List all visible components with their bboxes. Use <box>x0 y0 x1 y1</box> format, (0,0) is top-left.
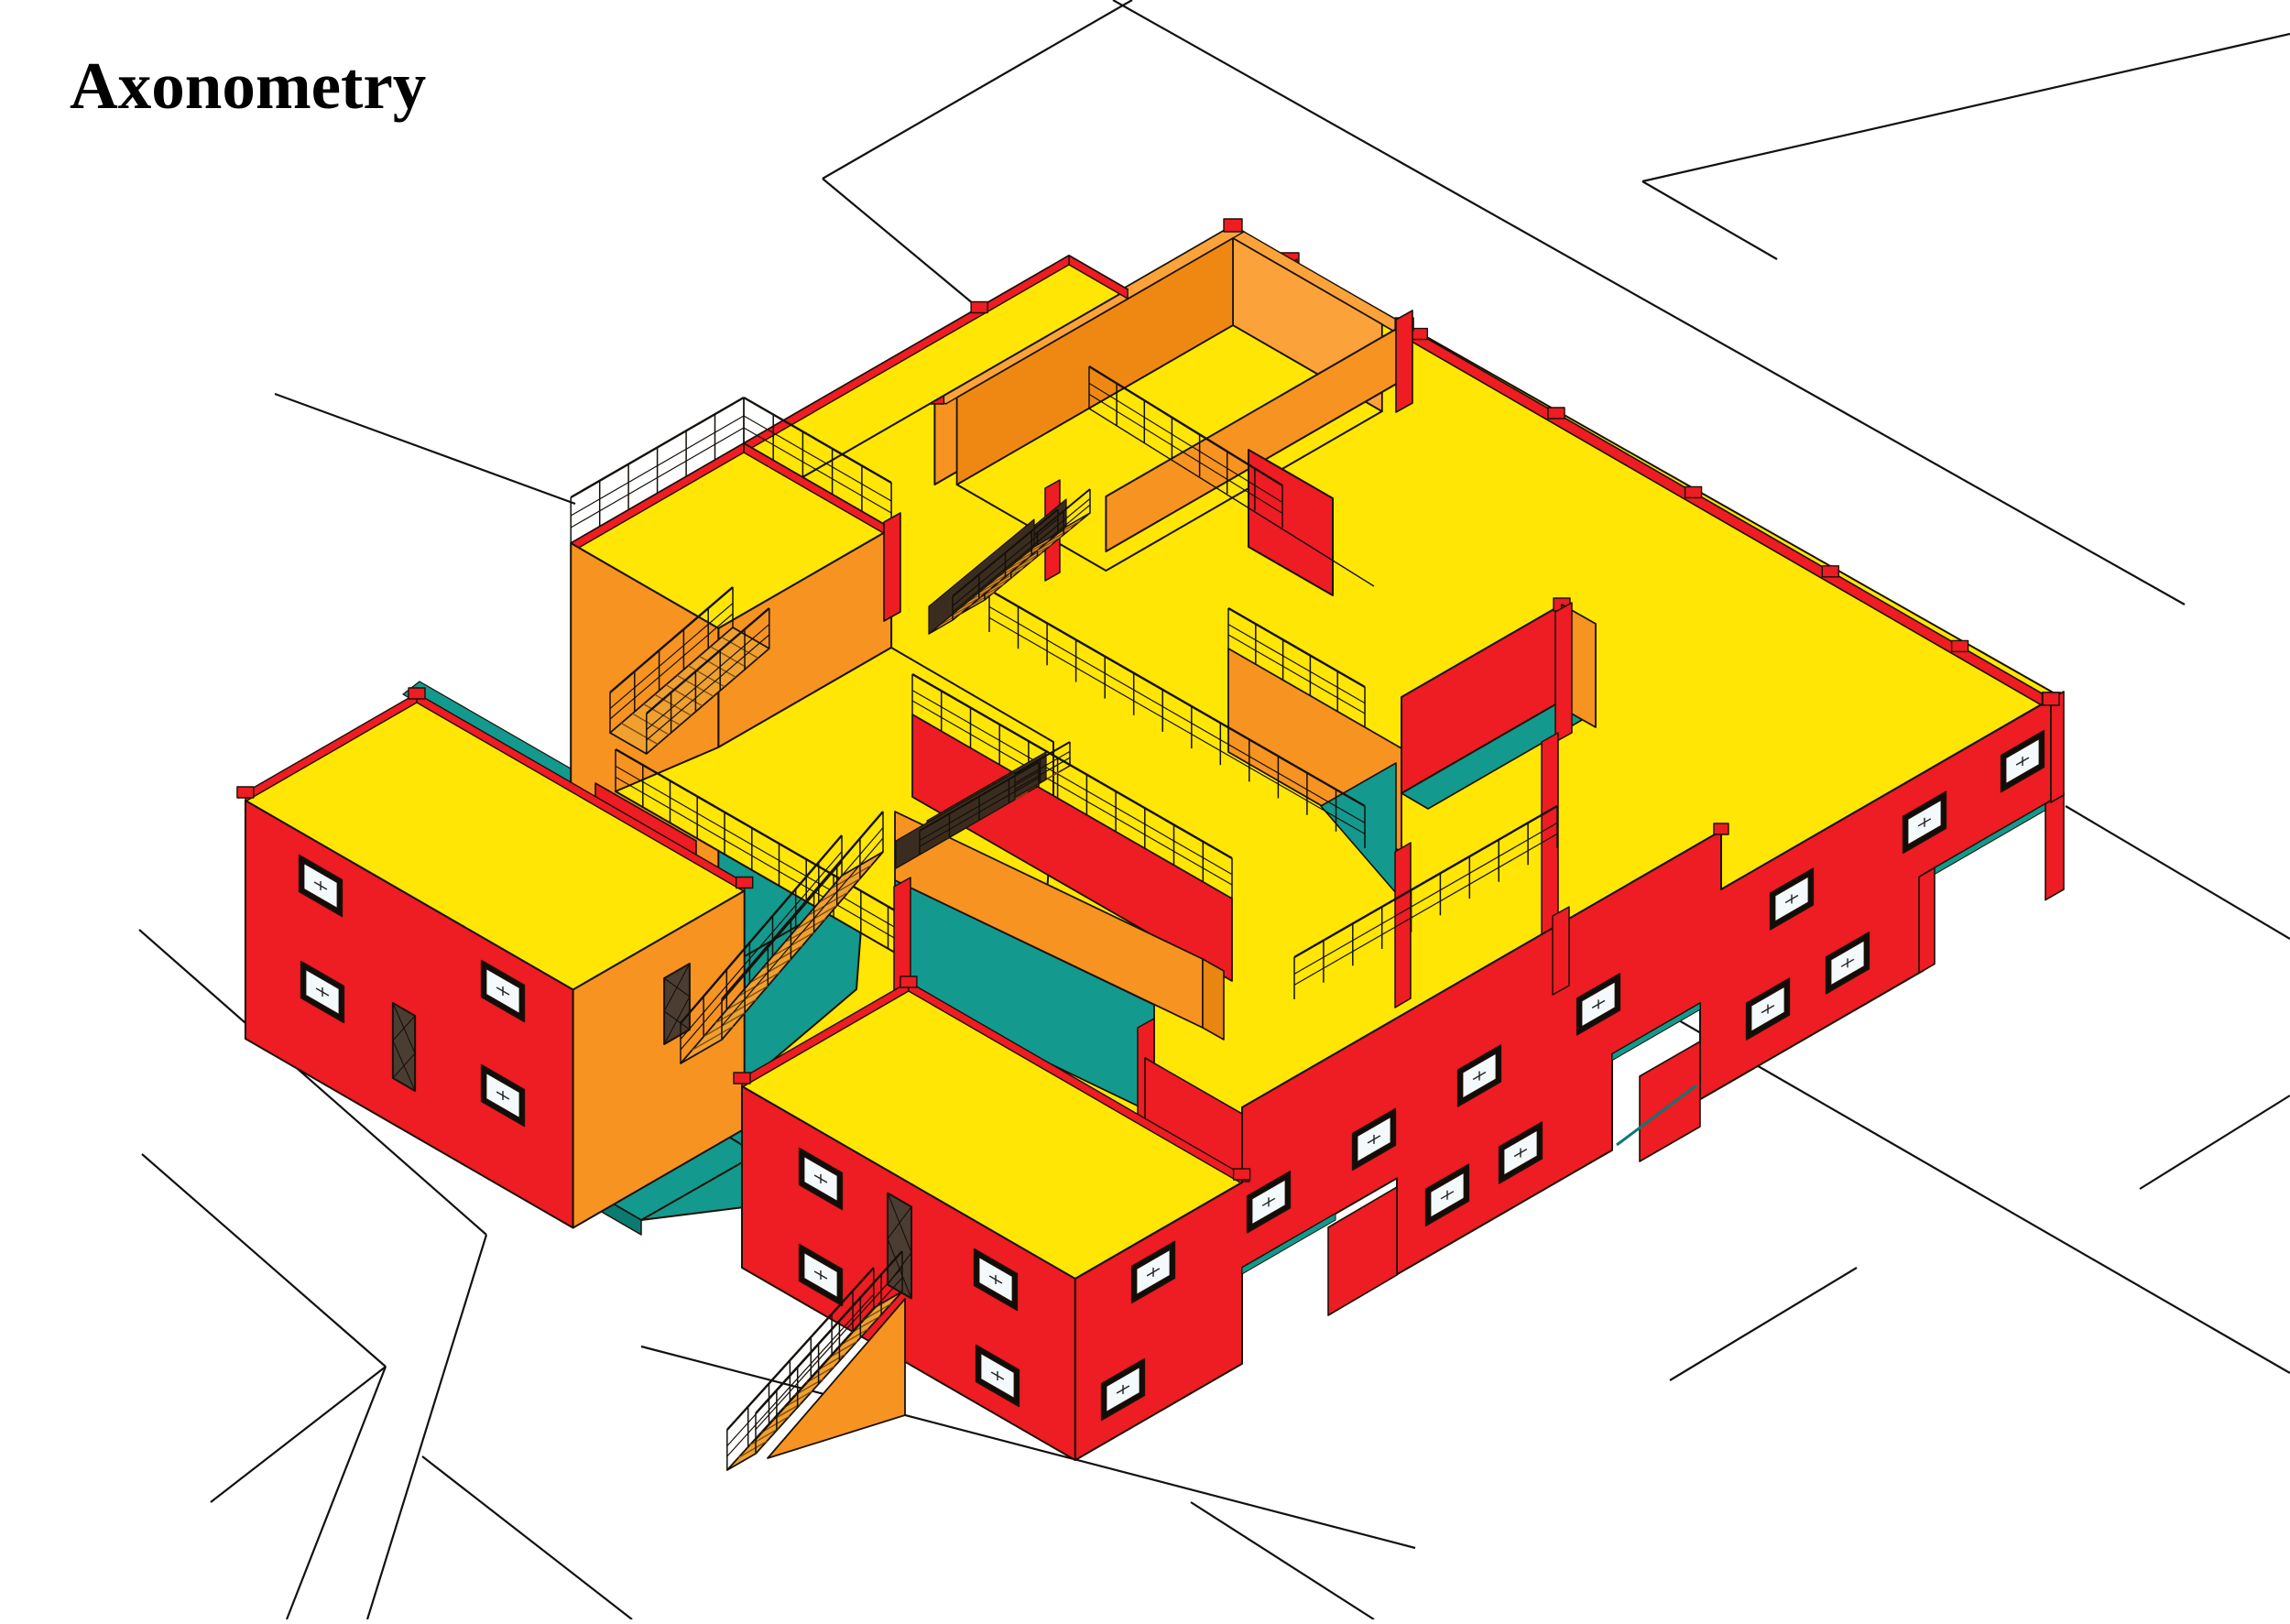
svg-text:Axonometry: Axonometry <box>70 49 426 123</box>
